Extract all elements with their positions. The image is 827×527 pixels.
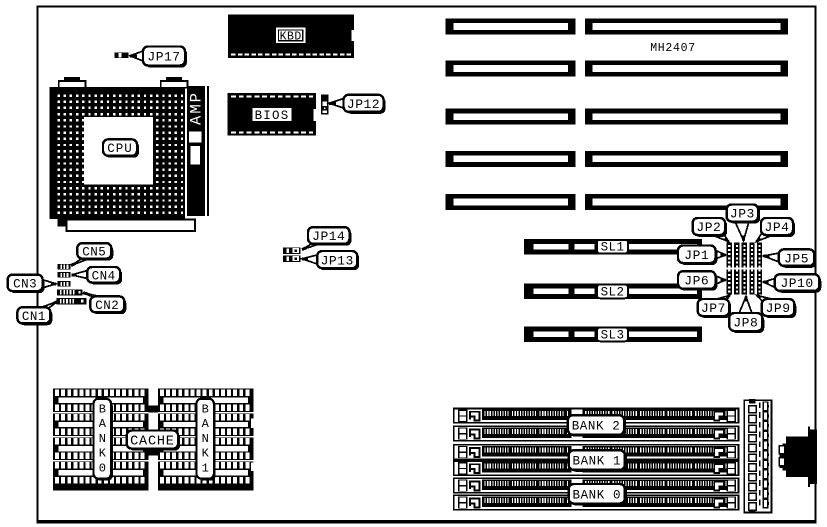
svg-text:BANK 0: BANK 0	[572, 488, 621, 502]
svg-text:JP7: JP7	[701, 301, 726, 316]
svg-text:JP6: JP6	[684, 274, 709, 289]
svg-text:CN5: CN5	[82, 245, 106, 259]
svg-text:0: 0	[99, 461, 106, 475]
svg-text:A: A	[202, 417, 210, 431]
svg-text:JP3: JP3	[730, 207, 755, 222]
svg-text:BIOS: BIOS	[255, 109, 290, 123]
svg-text:JP10: JP10	[780, 276, 813, 291]
svg-text:N: N	[202, 432, 209, 446]
svg-text:N: N	[99, 432, 106, 446]
svg-text:SL1: SL1	[601, 241, 625, 255]
svg-text:1: 1	[202, 461, 209, 475]
svg-text:JP8: JP8	[733, 316, 758, 331]
svg-text:MH2407: MH2407	[650, 42, 696, 55]
svg-text:CN3: CN3	[13, 277, 37, 291]
svg-text:CN2: CN2	[95, 299, 119, 313]
svg-text:KBD: KBD	[280, 31, 302, 44]
svg-text:JP14: JP14	[312, 229, 345, 244]
svg-text:SL3: SL3	[601, 328, 625, 342]
svg-text:B: B	[202, 403, 209, 417]
svg-text:K: K	[202, 447, 210, 461]
svg-text:SL2: SL2	[601, 285, 625, 299]
svg-text:B: B	[99, 403, 106, 417]
svg-text:K: K	[99, 447, 107, 461]
svg-text:JP12: JP12	[347, 97, 380, 112]
svg-text:JP13: JP13	[321, 253, 354, 268]
svg-text:JP2: JP2	[696, 220, 721, 235]
svg-text:CN1: CN1	[22, 310, 46, 324]
svg-text:CN4: CN4	[92, 269, 116, 283]
svg-text:BANK 2: BANK 2	[572, 419, 621, 433]
svg-text:JP5: JP5	[784, 251, 809, 266]
svg-text:JP17: JP17	[147, 50, 180, 65]
svg-text:JP1: JP1	[684, 248, 709, 263]
svg-text:BANK 1: BANK 1	[572, 455, 621, 469]
svg-text:JP4: JP4	[765, 220, 790, 235]
svg-text:A: A	[99, 417, 107, 431]
svg-text:JP9: JP9	[766, 301, 791, 316]
svg-text:AMP: AMP	[188, 91, 206, 125]
svg-text:CPU: CPU	[107, 142, 133, 156]
svg-text:CACHE: CACHE	[130, 434, 175, 449]
